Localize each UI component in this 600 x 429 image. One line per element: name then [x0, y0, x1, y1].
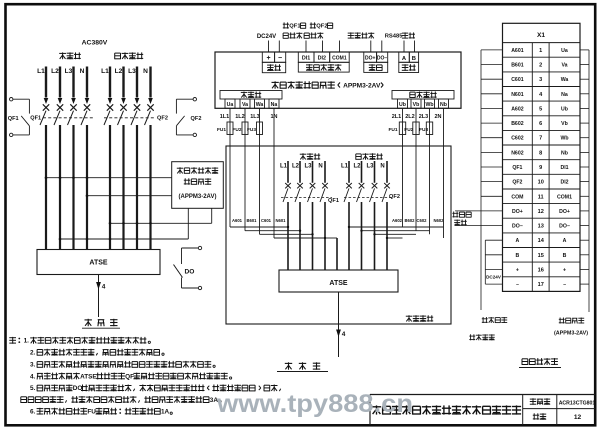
svg-text:ATSE: ATSE	[329, 280, 347, 287]
svg-text:RS485: RS485	[385, 34, 404, 40]
svg-text:A: A	[563, 238, 567, 244]
svg-text:DI1: DI1	[560, 165, 568, 171]
svg-text:DC24V: DC24V	[486, 274, 502, 279]
svg-text:Na: Na	[561, 92, 568, 98]
svg-text:9: 9	[539, 165, 542, 171]
svg-text:Va: Va	[561, 63, 567, 69]
svg-text:C601: C601	[511, 77, 524, 83]
svg-text:B: B	[516, 253, 520, 259]
svg-text:FU1: FU1	[388, 127, 397, 133]
svg-text:QF2: QF2	[157, 115, 168, 121]
svg-text:11: 11	[538, 194, 544, 200]
svg-text:L3: L3	[304, 163, 312, 169]
svg-text:4: 4	[342, 331, 346, 338]
svg-text:ACR13CTG801: ACR13CTG801	[559, 400, 596, 406]
svg-text:B601: B601	[511, 63, 524, 69]
svg-text:(APPM3-2AV): (APPM3-2AV)	[554, 331, 588, 337]
svg-text:N602: N602	[433, 218, 444, 223]
svg-text:A602: A602	[392, 218, 403, 223]
svg-text:B602: B602	[511, 121, 524, 127]
svg-text:FU2: FU2	[232, 127, 241, 133]
svg-text:A601: A601	[511, 48, 524, 54]
svg-text:5: 5	[539, 107, 542, 113]
svg-text:APPM3-2AV: APPM3-2AV	[343, 82, 381, 89]
svg-text:Wa: Wa	[561, 77, 569, 83]
svg-text:A602: A602	[511, 107, 524, 113]
svg-text:L1: L1	[341, 163, 349, 169]
svg-text:L1: L1	[101, 68, 109, 75]
svg-text:B: B	[563, 253, 567, 259]
svg-text:4.: 4.	[30, 373, 36, 380]
svg-text:N: N	[318, 163, 322, 169]
svg-text:(APPM3-2AV): (APPM3-2AV)	[179, 194, 217, 200]
svg-text:3: 3	[539, 77, 542, 83]
svg-text:COM1: COM1	[332, 56, 347, 62]
svg-text:C602: C602	[511, 136, 524, 142]
svg-text:12: 12	[538, 209, 544, 215]
svg-text:Va: Va	[242, 102, 248, 108]
svg-text:L2: L2	[115, 68, 123, 75]
svg-text:Na: Na	[271, 102, 278, 108]
svg-text:DI2: DI2	[318, 56, 326, 62]
svg-text:L1: L1	[280, 163, 288, 169]
svg-text:6: 6	[539, 121, 542, 127]
svg-text:A: A	[516, 238, 520, 244]
svg-text:10: 10	[538, 180, 544, 186]
svg-text:Nb: Nb	[440, 102, 447, 108]
svg-text:1.: 1.	[24, 338, 30, 345]
svg-text:Vb: Vb	[561, 121, 568, 127]
svg-text:1A: 1A	[161, 409, 170, 416]
svg-text:N601: N601	[275, 218, 286, 223]
svg-text:N601: N601	[511, 92, 524, 98]
svg-text:15: 15	[538, 253, 544, 259]
svg-text:13: 13	[538, 224, 544, 230]
svg-text:2L3: 2L3	[419, 114, 428, 120]
svg-text:Ua: Ua	[227, 102, 234, 108]
svg-text:Wa: Wa	[256, 102, 264, 108]
svg-text:4: 4	[102, 284, 106, 291]
svg-text:2L2: 2L2	[405, 114, 414, 120]
svg-text:1L1: 1L1	[220, 114, 229, 120]
svg-text:B602: B602	[404, 218, 415, 223]
svg-text:A601: A601	[232, 218, 243, 223]
svg-text:www.tpy888.cn: www.tpy888.cn	[216, 390, 413, 418]
svg-text:QF2: QF2	[512, 180, 522, 186]
svg-text:DO: DO	[185, 269, 195, 276]
svg-text:FU2: FU2	[404, 127, 413, 133]
svg-text:N: N	[380, 163, 384, 169]
svg-text:2N: 2N	[434, 114, 441, 120]
svg-text:QF1: QF1	[512, 165, 522, 171]
svg-text:L2: L2	[51, 68, 59, 75]
svg-text:Nb: Nb	[561, 150, 568, 156]
svg-text:L3: L3	[366, 163, 374, 169]
svg-text:14: 14	[538, 238, 545, 244]
svg-text:1L3: 1L3	[250, 114, 259, 120]
svg-text:Ub: Ub	[561, 107, 568, 113]
svg-text:FU: FU	[87, 409, 96, 416]
svg-text:L2: L2	[292, 163, 300, 169]
svg-text:−: −	[563, 282, 566, 288]
svg-text:X1: X1	[537, 32, 545, 39]
svg-text:1N: 1N	[270, 114, 277, 120]
svg-text:ATSE: ATSE	[89, 260, 107, 267]
svg-text:B: B	[412, 56, 416, 62]
svg-text:QF1: QF1	[30, 115, 41, 121]
svg-text:−: −	[278, 55, 282, 62]
svg-text:FU1: FU1	[217, 127, 226, 133]
svg-text:QF1: QF1	[289, 24, 301, 30]
svg-text:2.: 2.	[30, 350, 36, 357]
svg-text:QF1: QF1	[328, 198, 339, 204]
svg-text:L3: L3	[128, 68, 136, 75]
svg-text:1L2: 1L2	[235, 114, 244, 120]
svg-text:QF2: QF2	[389, 194, 400, 200]
svg-text:+: +	[516, 267, 519, 273]
svg-text:−: −	[516, 282, 519, 288]
svg-text:DO+: DO+	[365, 56, 376, 62]
svg-text:+: +	[563, 267, 566, 273]
svg-text:2: 2	[539, 63, 542, 69]
svg-text:Ua: Ua	[561, 48, 568, 54]
svg-text:QF2: QF2	[191, 116, 202, 122]
svg-text:+: +	[266, 55, 270, 62]
svg-text:8: 8	[539, 150, 542, 156]
svg-text:B601: B601	[246, 218, 257, 223]
svg-text:DO−: DO−	[559, 224, 570, 230]
svg-text:Wb: Wb	[425, 102, 433, 108]
svg-text:DI1: DI1	[302, 56, 310, 62]
svg-text:DO−: DO−	[377, 56, 388, 62]
svg-text:QF2: QF2	[316, 24, 327, 30]
svg-text:COM: COM	[511, 194, 523, 200]
svg-text:1: 1	[539, 48, 542, 54]
svg-text:C601: C601	[261, 218, 272, 223]
svg-text:QF: QF	[125, 373, 134, 380]
svg-text:DO−: DO−	[512, 224, 523, 230]
svg-text:6.: 6.	[30, 409, 36, 416]
svg-text:DO: DO	[73, 385, 83, 392]
svg-text:12: 12	[574, 414, 582, 421]
svg-text:C602: C602	[416, 218, 427, 223]
svg-text:5.: 5.	[30, 385, 36, 392]
svg-text:N602: N602	[511, 150, 524, 156]
svg-text:DI2: DI2	[560, 180, 568, 186]
svg-text:16: 16	[538, 267, 544, 273]
svg-text:Ub: Ub	[399, 102, 406, 108]
svg-text:N: N	[80, 68, 85, 75]
svg-text:DO+: DO+	[512, 209, 523, 215]
svg-text:DC24V: DC24V	[257, 34, 276, 40]
svg-text:ATSE: ATSE	[80, 373, 97, 380]
svg-text:L3: L3	[65, 68, 73, 75]
svg-text:FU3: FU3	[247, 127, 256, 133]
svg-text:Vb: Vb	[413, 102, 420, 108]
svg-text:AC380V: AC380V	[82, 40, 108, 47]
svg-text:FU3: FU3	[419, 127, 428, 133]
svg-text:L2: L2	[353, 163, 361, 169]
svg-text:QF1: QF1	[8, 116, 19, 122]
svg-text:Wb: Wb	[560, 136, 568, 142]
svg-text:7: 7	[539, 136, 542, 142]
svg-text:DO+: DO+	[559, 209, 570, 215]
svg-text:N: N	[143, 68, 148, 75]
svg-text:3.: 3.	[30, 362, 36, 369]
svg-text:2L1: 2L1	[392, 114, 401, 120]
svg-text:COM1: COM1	[557, 194, 572, 200]
svg-text:L1: L1	[37, 68, 45, 75]
svg-text:17: 17	[538, 282, 544, 288]
